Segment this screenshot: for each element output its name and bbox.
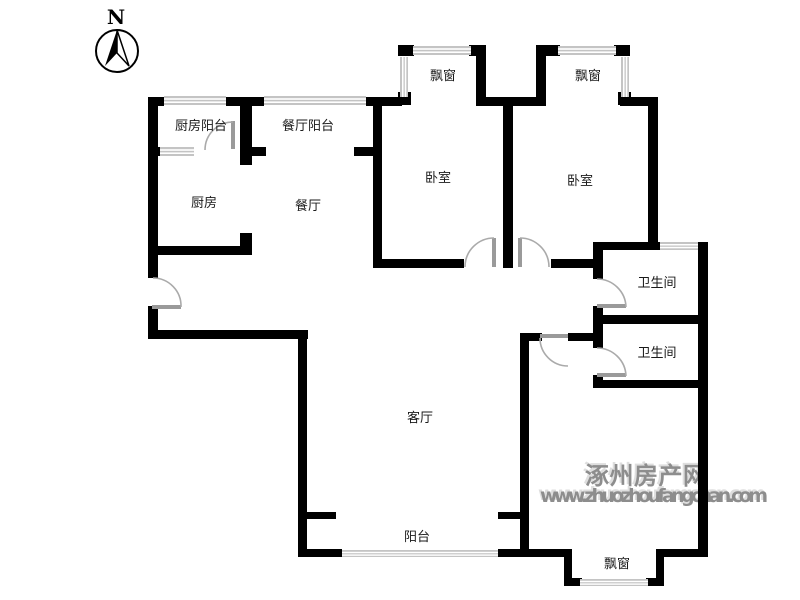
wall-living-left bbox=[298, 330, 307, 557]
compass: N bbox=[96, 5, 138, 72]
wall-bottom-left bbox=[148, 330, 308, 339]
wall-living-right-divider bbox=[520, 333, 529, 553]
wall-kitchen-bottom bbox=[148, 246, 248, 255]
room-label-bedroom-2: 卧室 bbox=[567, 173, 593, 189]
wall-bathroom1-top bbox=[593, 242, 660, 250]
wall-corridor-seg-left bbox=[520, 333, 542, 341]
window-dining-balcony-top bbox=[264, 96, 366, 105]
compass-needle-light-icon bbox=[117, 30, 129, 66]
floorplan-page: N 涿州房产网 涿州房产网 www.zhuozhoufangchan.com w… bbox=[0, 0, 800, 600]
room-label-bay-window-bottom: 飘窗 bbox=[604, 556, 630, 572]
wall-bathrooms-shared bbox=[593, 315, 708, 324]
door-bedroom1 bbox=[465, 238, 496, 267]
wall-between-bays bbox=[480, 97, 540, 106]
wall-bathrooms-left-mid bbox=[593, 306, 603, 348]
wall-balcony-stub bbox=[298, 512, 336, 519]
wall-bay2-corner-left bbox=[544, 45, 560, 56]
wall-top-corner-left bbox=[148, 97, 164, 106]
window-kitchen-balcony-top bbox=[164, 96, 226, 105]
wall-top-seg-c bbox=[366, 97, 402, 106]
room-label-bedroom-1: 卧室 bbox=[425, 170, 451, 186]
window-bay1-top bbox=[413, 46, 471, 55]
wall-bedroom2-right bbox=[648, 97, 658, 250]
wall-kitchen-balcony-corner bbox=[148, 147, 162, 156]
room-label-kitchen: 厨房 bbox=[191, 195, 217, 211]
compass-needle-dark-icon bbox=[105, 30, 117, 66]
wall-right-outer bbox=[698, 242, 708, 557]
wall-bedroom1-left bbox=[373, 97, 382, 268]
room-label-bay-window-1: 飘窗 bbox=[430, 68, 456, 84]
floorplan-drawing: N 涿州房产网 涿州房产网 www.zhuozhoufangchan.com w… bbox=[0, 0, 800, 600]
window-balcony-bottom bbox=[342, 550, 498, 557]
wall-balcony-bottom-right bbox=[498, 549, 572, 557]
room-label-kitchen-balcony: 厨房阳台 bbox=[175, 118, 227, 134]
wall-balcony-bottom-left bbox=[298, 549, 342, 557]
window-bottom-bay bbox=[580, 579, 648, 586]
wall-bedroom2-bottom bbox=[551, 259, 597, 268]
door-bedroom2 bbox=[518, 238, 549, 267]
wall-bottom-bay-corner-left bbox=[564, 578, 582, 586]
door-bathroom1 bbox=[597, 279, 626, 308]
room-label-bathroom-1: 卫生间 bbox=[637, 276, 676, 291]
window-kitchen-balcony-bottom bbox=[160, 147, 194, 156]
wall-corridor-seg-right bbox=[568, 333, 600, 341]
room-label-balcony: 阳台 bbox=[404, 530, 430, 545]
window-bay2-top bbox=[558, 46, 616, 55]
wall-bay1-corner-left bbox=[398, 45, 414, 56]
compass-north-label: N bbox=[107, 5, 125, 29]
wall-bedroom1-bottom bbox=[373, 259, 464, 268]
door-bathroom2 bbox=[597, 348, 626, 377]
window-bay1-side bbox=[400, 57, 408, 97]
wall-bathroom2-bottom bbox=[593, 380, 708, 388]
wall-bedrooms-divider bbox=[503, 105, 513, 268]
room-label-living-room: 客厅 bbox=[407, 410, 433, 426]
room-label-dining-balcony: 餐厅阳台 bbox=[282, 118, 334, 134]
room-label-bay-window-2: 飘窗 bbox=[575, 68, 601, 84]
window-bay2-side bbox=[621, 57, 629, 97]
wall-dining-balcony-stub-left bbox=[240, 147, 266, 156]
wall-bay2-corner-right bbox=[614, 45, 630, 56]
watermark: 涿州房产网 涿州房产网 www.zhuozhoufangchan.com www… bbox=[538, 460, 768, 507]
room-label-bathroom-2: 卫生间 bbox=[637, 346, 676, 361]
watermark-site-url: www.zhuozhoufangchan.com bbox=[540, 485, 768, 507]
room-label-dining-room: 餐厅 bbox=[295, 198, 321, 214]
door-corridor-room bbox=[540, 334, 568, 366]
window-bathroom1-top bbox=[660, 242, 698, 250]
door-entry bbox=[152, 278, 181, 309]
wall-bay1-right bbox=[476, 45, 486, 106]
